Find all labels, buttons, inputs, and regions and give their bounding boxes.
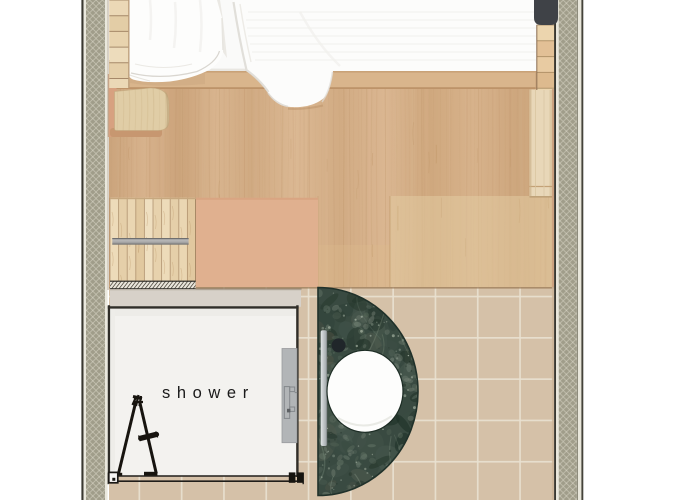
svg-text:shower: shower xyxy=(162,384,255,402)
